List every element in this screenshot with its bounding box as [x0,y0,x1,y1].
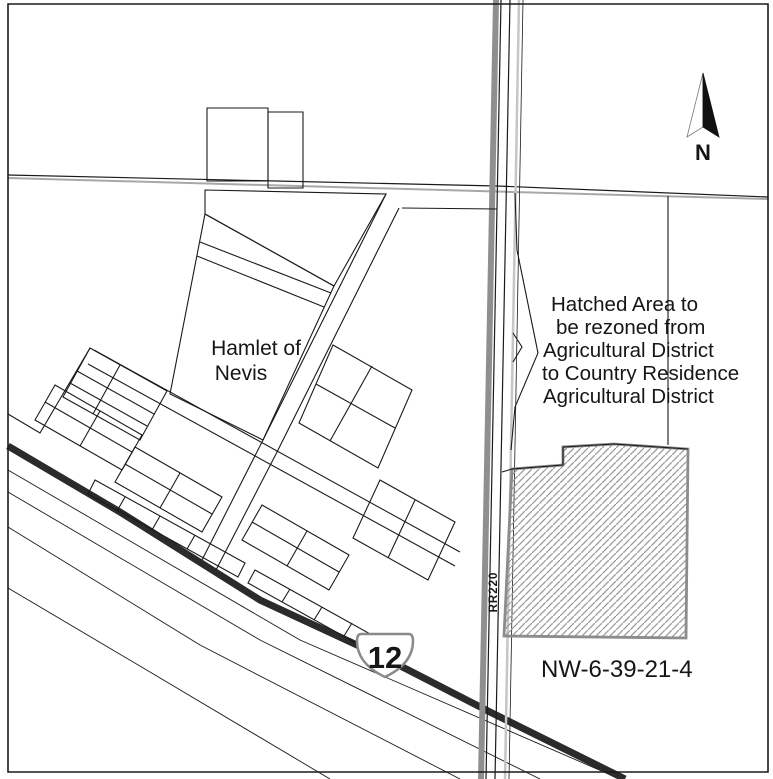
road-east-boundary-notch [513,333,522,362]
top-building-right [268,112,303,188]
block-r3b-lot-line-2 [314,607,322,620]
hamlet-text-parcel-lot-line-2 [197,256,324,307]
cross-street-west-edge [263,194,386,440]
hamlet-text-parcel-lot-line-1 [200,242,331,293]
block-r3b-lot-line-3 [344,623,352,636]
block-e2-lot-line [388,500,415,558]
zoning-map-page: Hamlet ofNevisHatched Area tobe rezoned … [0,0,773,779]
rr220-shoulder-light [505,0,519,779]
north-arrow-label: N [695,140,711,165]
rezone-note-line5: Agricultural District [543,385,714,408]
rezone-note-line2: be rezoned from [556,316,705,339]
rezone-note-line4: to Country Residence [542,362,739,385]
main-street-south-edge [88,364,455,566]
section-line-gray [8,178,768,199]
zoning-map: Hamlet ofNevisHatched Area tobe rezoned … [0,0,773,779]
block-r3b-lot-line-1 [282,589,290,602]
block-m2-lot-line-1 [160,473,180,508]
block-east-lot-line-2 [330,366,372,441]
north-arrow-left-half [687,73,703,137]
parcel-line-to-road [402,208,497,209]
north-strip-parcel [205,190,386,286]
rezone-hatch-area [504,444,688,638]
parcel-id-label: NW-6-39-21-4 [541,656,693,683]
cross-street-east-edge [276,208,399,454]
hamlet-label-line2: Nevis [215,362,268,385]
block-r3a-lot-line-3 [187,535,195,549]
cross-street-ext-east-edge [216,454,276,570]
highway-shield-number: 12 [368,640,402,675]
hamlet-label-line1: Hamlet of [211,337,301,360]
top-building-left [207,108,268,181]
rr220-road-label: RR220 [488,572,500,613]
north-arrow-right-half [703,73,719,137]
block-m3-lot-line-2 [252,522,339,572]
rail-allowance-line-4 [8,588,330,779]
block-m3-lot-line-1 [287,531,307,566]
block-w1-lot-line-3 [93,365,120,414]
block-r3a-lot-line-2 [152,516,160,530]
rezone-note-line3: Agricultural District [543,339,714,362]
block-m1-lot-line-2 [45,402,132,452]
block-w1-lot-line-2 [70,383,147,426]
block-m2-lot-line-2 [125,464,212,514]
section-line [8,175,768,197]
block-e2 [353,480,455,580]
cross-street-ext-west-edge [202,440,263,560]
block-m1-lot-line-1 [80,411,100,446]
block-east-lot-line-1 [316,384,395,428]
rezone-note-line1: Hatched Area to [551,293,698,316]
